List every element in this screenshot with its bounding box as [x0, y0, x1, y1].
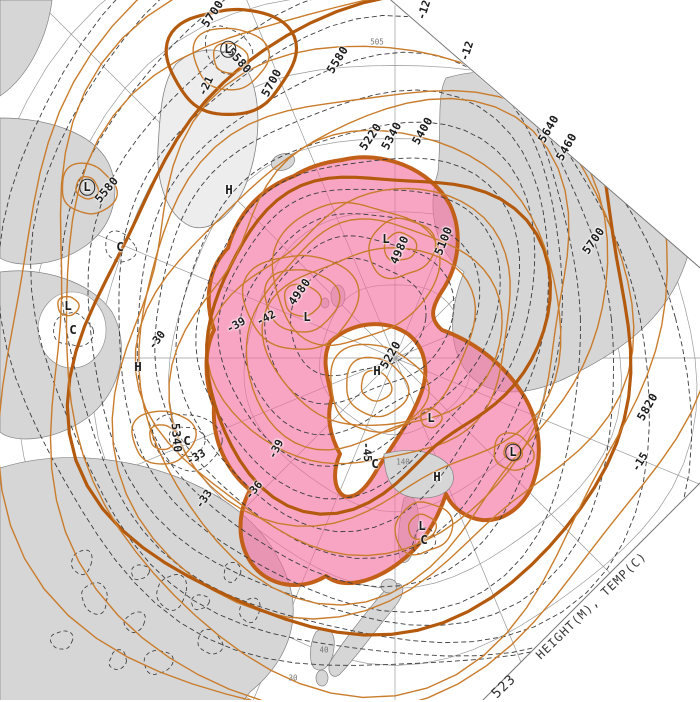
pressure-center-marker: C	[69, 324, 77, 337]
land-topleft-corner	[0, 0, 52, 96]
pressure-center-marker: L	[382, 233, 390, 246]
pressure-center-marker: H	[225, 184, 233, 197]
pressure-center-marker: L	[418, 520, 426, 533]
land-kyushu	[316, 670, 328, 686]
graticule-label: 140	[396, 458, 410, 466]
pressure-center-marker: C	[183, 435, 191, 448]
pressure-center-marker: L	[505, 444, 521, 461]
graticule-label: 505	[370, 38, 384, 46]
weather-map: 5700558057005580558052205340540056405460…	[0, 0, 700, 700]
graticule-label: 30	[288, 674, 297, 682]
pressure-center-marker: L	[79, 179, 95, 196]
land-japan	[329, 584, 403, 677]
pressure-center-marker: C	[420, 534, 428, 547]
pressure-center-marker: H	[134, 361, 142, 374]
pressure-center-marker: C	[116, 241, 124, 254]
height-contour-label: 5340	[169, 423, 183, 454]
pressure-center-marker: L	[427, 412, 435, 425]
pressure-center-marker: L	[303, 311, 311, 324]
graticule-label: 40	[319, 646, 328, 654]
pressure-center-marker: L	[220, 41, 236, 58]
pressure-center-marker: H	[433, 471, 441, 484]
pressure-center-marker: L	[64, 300, 72, 313]
pressure-center-marker: C	[371, 458, 379, 471]
pressure-center-marker: H	[373, 365, 381, 378]
